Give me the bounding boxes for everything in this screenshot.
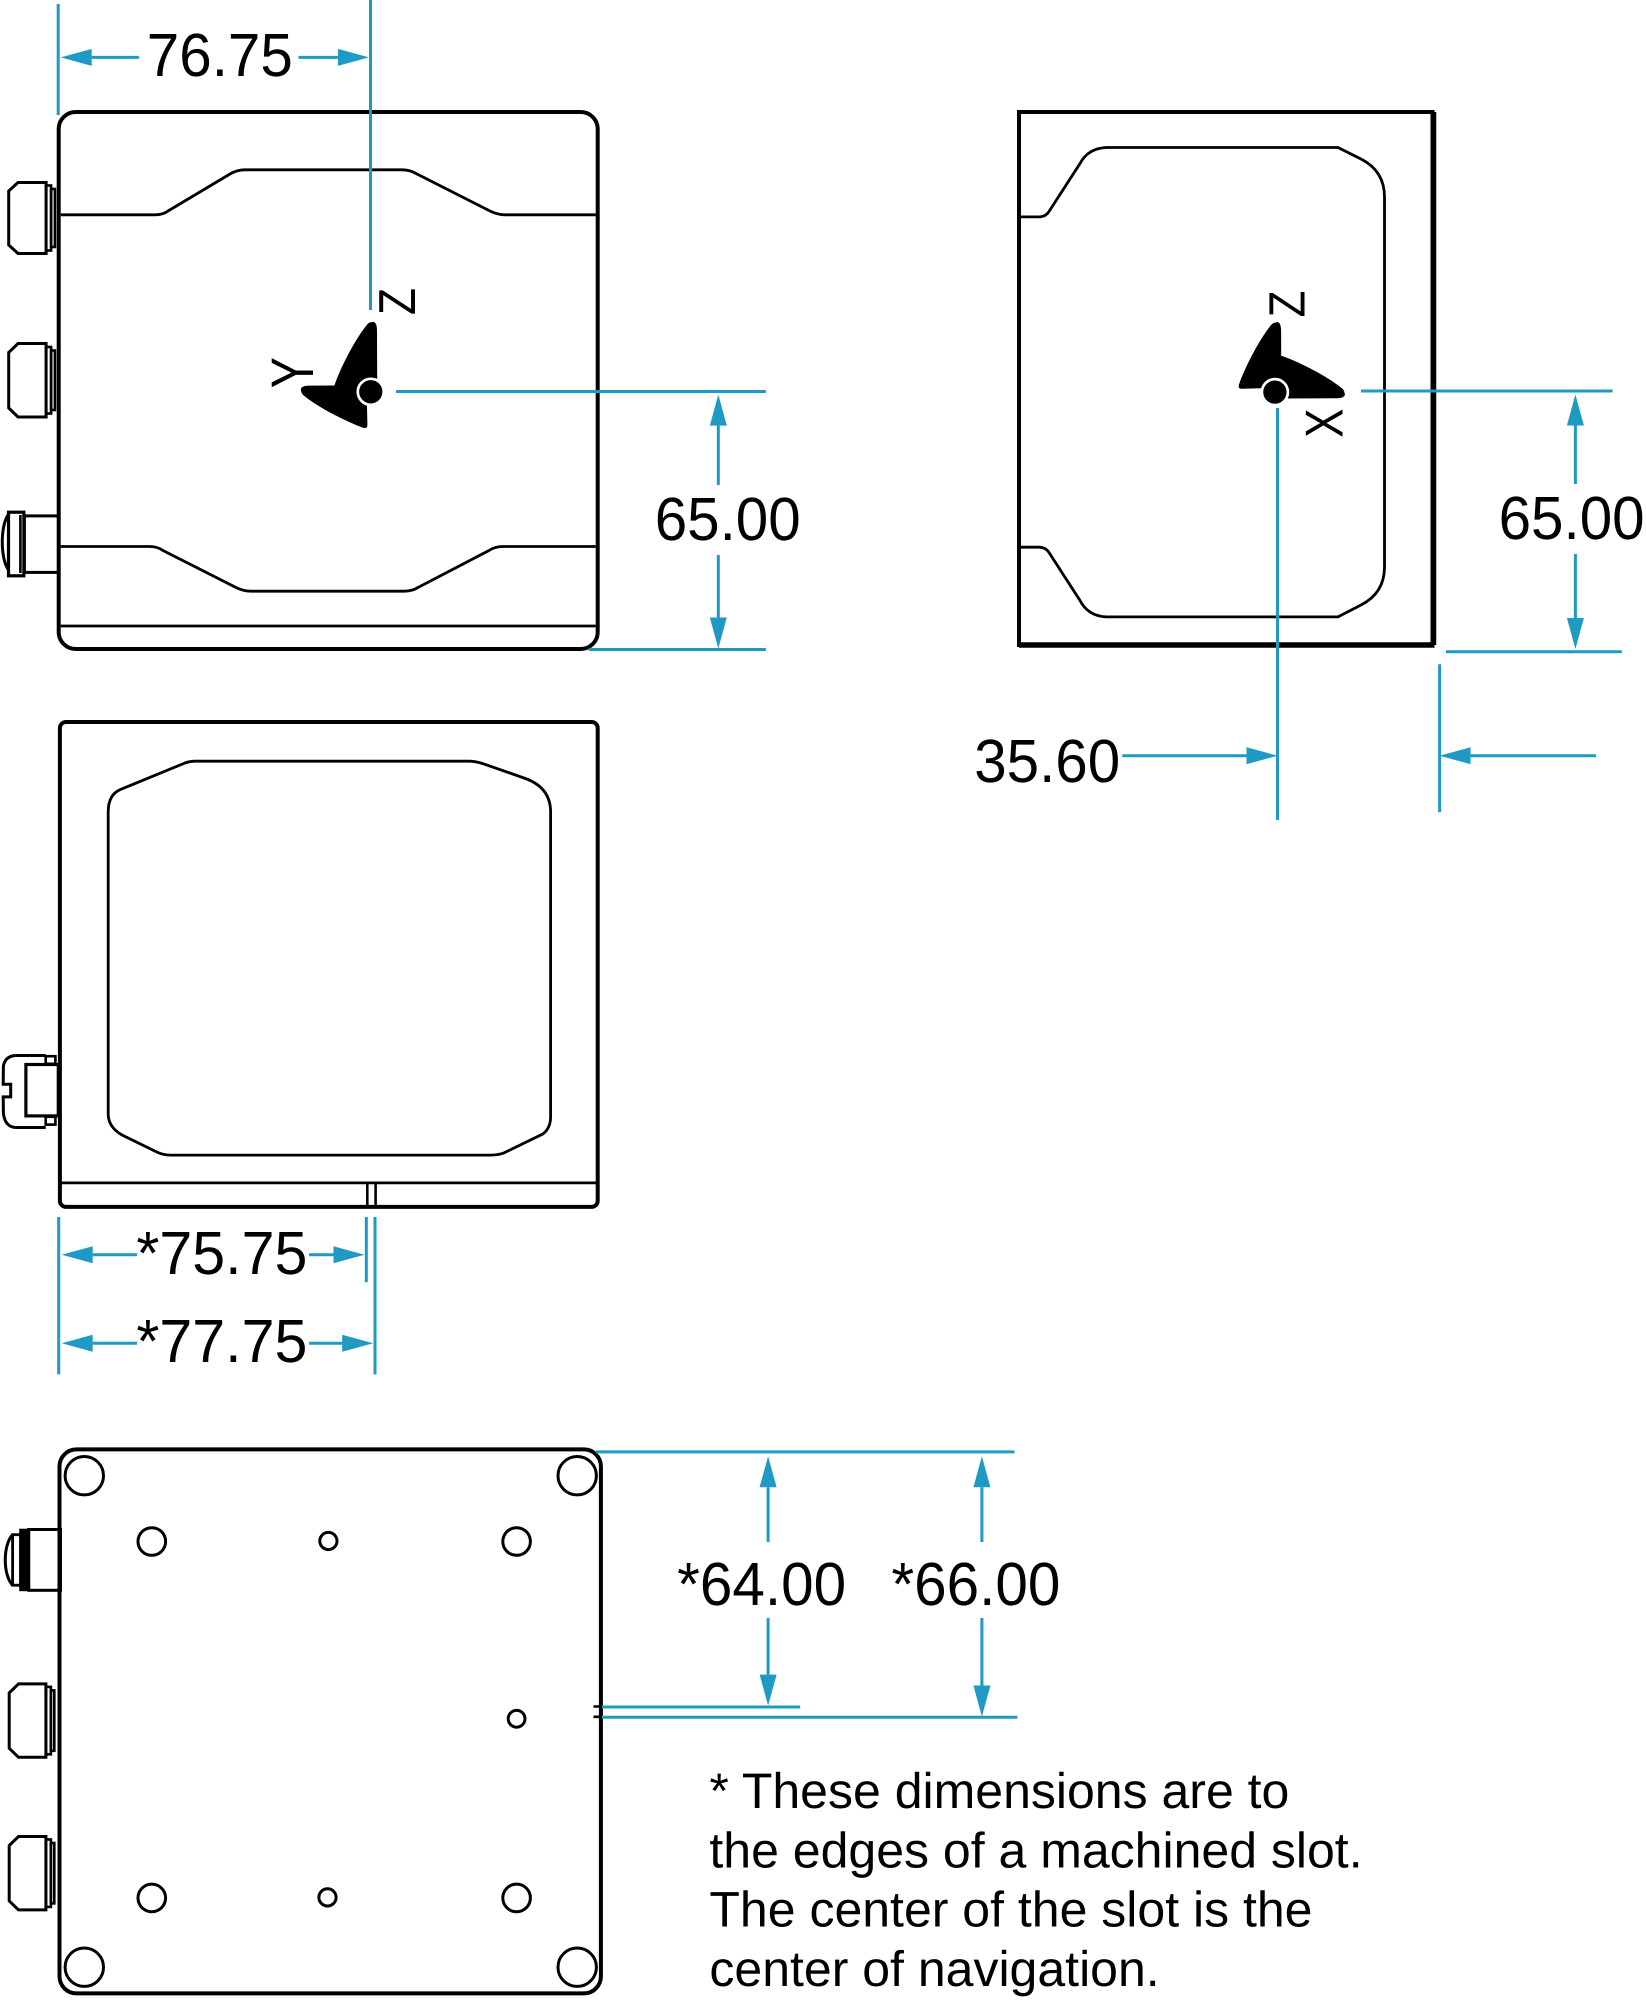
- svg-text:Z: Z: [369, 288, 427, 315]
- svg-text:Y: Y: [259, 357, 326, 388]
- svg-text:center of navigation.: center of navigation.: [709, 1941, 1159, 1997]
- svg-text:X: X: [1296, 409, 1355, 438]
- svg-text:The center of the slot is the: The center of the slot is the: [709, 1882, 1312, 1938]
- svg-text:65.00: 65.00: [655, 485, 801, 553]
- svg-text:* These dimensions are to: * These dimensions are to: [709, 1763, 1289, 1819]
- svg-text:*66.00: *66.00: [891, 1550, 1060, 1618]
- svg-text:*64.00: *64.00: [677, 1550, 846, 1618]
- svg-text:*77.75: *77.75: [136, 1307, 307, 1375]
- svg-text:Z: Z: [1259, 291, 1316, 318]
- svg-text:76.75: 76.75: [147, 21, 293, 89]
- svg-text:35.60: 35.60: [974, 727, 1120, 795]
- svg-text:the edges of a machined slot.: the edges of a machined slot.: [709, 1822, 1362, 1878]
- svg-text:65.00: 65.00: [1499, 484, 1645, 552]
- svg-text:*75.75: *75.75: [136, 1219, 307, 1287]
